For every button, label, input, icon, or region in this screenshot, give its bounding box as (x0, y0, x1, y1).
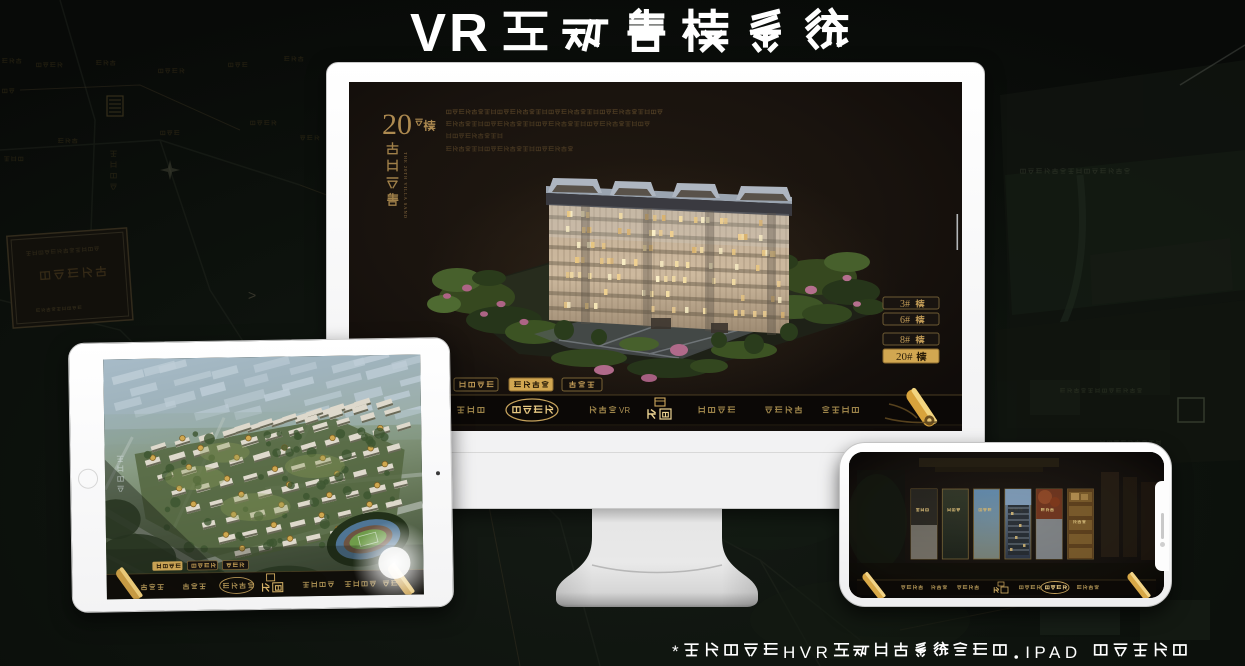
svg-text:8#: 8# (900, 335, 910, 346)
svg-text:THE 20TH VILLA SAND: THE 20TH VILLA SAND (403, 152, 408, 219)
svg-text:3#: 3# (900, 299, 910, 310)
svg-text:VR: VR (619, 406, 630, 415)
svg-text:IPAD: IPAD (1025, 643, 1081, 662)
svg-text:20: 20 (382, 108, 412, 141)
svg-text:HVR: HVR (783, 643, 832, 662)
svg-text:20#: 20# (896, 351, 913, 363)
svg-text:*: * (672, 642, 679, 661)
svg-text:VR: VR (410, 3, 491, 62)
svg-text:6#: 6# (900, 315, 910, 326)
svg-text:>: > (248, 287, 256, 303)
